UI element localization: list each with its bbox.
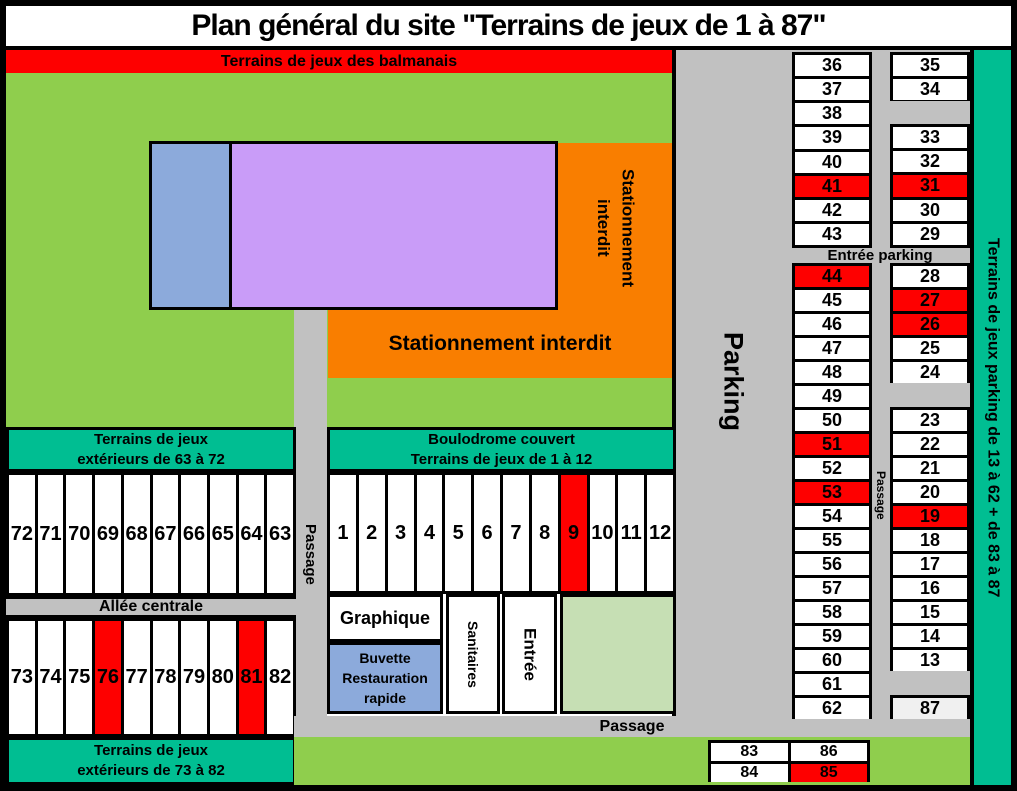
court-cell-39: 39	[795, 127, 869, 148]
court-cell-12: 12	[647, 475, 673, 591]
court-cell-5: 5	[445, 475, 471, 591]
parking-col-b-top-1: 3534	[890, 52, 970, 101]
parking-label-text: Parking	[718, 332, 749, 431]
entree-box: Entrée	[502, 594, 557, 714]
court-cell-29: 29	[893, 224, 967, 245]
court-cell-18: 18	[893, 530, 967, 551]
passage-band-bottom: Passage	[294, 716, 970, 737]
court-cell-62: 62	[795, 698, 869, 719]
court-cell-58: 58	[795, 602, 869, 623]
banner-balmanais: Terrains de jeux des balmanais	[6, 50, 672, 73]
site-map: Terrains de jeux des balmanais Parking S…	[6, 50, 1011, 785]
court-cell-87: 87	[893, 698, 967, 719]
parking-col-a-bottom: 44454647484950515253545556575859606162	[792, 263, 872, 719]
court-cell-67: 67	[153, 475, 179, 593]
banner-parking-13-62-83-87: Terrains de jeux parking de 13 à 62 + de…	[970, 50, 1011, 785]
court-cell-60: 60	[795, 650, 869, 671]
site-plan-page: Plan général du site "Terrains de jeux d…	[0, 0, 1017, 791]
banner-parking-right-text: Terrains de jeux parking de 13 à 62 + de…	[984, 238, 1002, 597]
court-cell-4: 4	[417, 475, 443, 591]
court-cell-47: 47	[795, 338, 869, 359]
court-cell-1: 1	[330, 475, 356, 591]
court-cell-16: 16	[893, 578, 967, 599]
pale-green-zone	[560, 594, 676, 714]
court-cell-84: 84	[711, 764, 788, 782]
court-cell-85: 85	[791, 764, 868, 782]
court-cell-86: 86	[791, 743, 868, 761]
court-cell-50: 50	[795, 410, 869, 431]
court-cell-57: 57	[795, 578, 869, 599]
court-cell-33: 33	[893, 127, 967, 148]
court-cell-7: 7	[503, 475, 529, 591]
court-cell-61: 61	[795, 674, 869, 695]
no-parking-zone-vertical: Stationnement interdit	[558, 143, 672, 313]
court-cell-72: 72	[9, 475, 35, 593]
court-cell-31: 31	[893, 175, 967, 196]
courts-row-63-72: 72717069686766656463	[6, 472, 296, 596]
court-cell-21: 21	[893, 458, 967, 479]
court-cell-63: 63	[267, 475, 293, 593]
graphique-box: Graphique	[327, 594, 443, 642]
parking-col-b-bottom-2: 2322212019181716151413	[890, 407, 970, 671]
court-cell-53: 53	[795, 482, 869, 503]
court-cell-23: 23	[893, 410, 967, 431]
court-cell-35: 35	[893, 55, 967, 76]
allee-centrale: Allée centrale	[6, 596, 296, 618]
court-cell-42: 42	[795, 200, 869, 221]
passage-strip-left: Passage	[294, 310, 327, 719]
court-cell-82: 82	[267, 621, 293, 734]
court-cell-77: 77	[124, 621, 150, 734]
court-cell-74: 74	[38, 621, 64, 734]
court-cell-26: 26	[893, 314, 967, 335]
banner-exterieurs-63-72: Terrains de jeux extérieurs de 63 à 72	[6, 427, 296, 472]
court-cell-75: 75	[66, 621, 92, 734]
court-cell-83: 83	[711, 743, 788, 761]
court-cell-19: 19	[893, 506, 967, 527]
court-cell-44: 44	[795, 266, 869, 287]
court-cell-73: 73	[9, 621, 35, 734]
court-cell-13: 13	[893, 650, 967, 671]
court-cell-41: 41	[795, 176, 869, 197]
court-cell-3: 3	[388, 475, 414, 591]
building-purple-section	[232, 144, 555, 307]
parking-cell-87: 87	[890, 695, 970, 719]
court-cell-38: 38	[795, 103, 869, 124]
court-cell-45: 45	[795, 290, 869, 311]
courts-83-86: 83868485	[708, 740, 870, 782]
court-cell-49: 49	[795, 386, 869, 407]
court-cell-28: 28	[893, 266, 967, 287]
court-cell-66: 66	[181, 475, 207, 593]
courts-row-1-12: 123456789101112	[327, 472, 676, 594]
court-cell-59: 59	[795, 626, 869, 647]
entree-parking-label: Entrée parking	[790, 247, 970, 263]
banner-boulodrome: Boulodrome couvert Terrains de jeux de 1…	[327, 427, 676, 472]
no-parking-zone-horizontal: Stationnement interdit	[328, 310, 672, 378]
court-cell-51: 51	[795, 434, 869, 455]
court-cell-40: 40	[795, 152, 869, 173]
court-cell-43: 43	[795, 224, 869, 245]
court-cell-2: 2	[359, 475, 385, 591]
parking-label: Parking	[676, 50, 790, 714]
court-cell-79: 79	[181, 621, 207, 734]
court-cell-55: 55	[795, 530, 869, 551]
passage-strip-right: Passage	[872, 450, 890, 540]
passage-left-label: Passage	[302, 524, 319, 585]
page-title: Plan général du site "Terrains de jeux d…	[6, 6, 1011, 46]
court-cell-48: 48	[795, 362, 869, 383]
court-cell-25: 25	[893, 338, 967, 359]
court-cell-20: 20	[893, 482, 967, 503]
court-cell-6: 6	[474, 475, 500, 591]
courts-row-73-82: 73747576777879808182	[6, 618, 296, 737]
court-cell-17: 17	[893, 554, 967, 575]
court-cell-15: 15	[893, 602, 967, 623]
court-cell-10: 10	[590, 475, 616, 591]
court-cell-11: 11	[618, 475, 644, 591]
court-cell-80: 80	[210, 621, 236, 734]
buvette-box: Buvette Restauration rapide	[327, 642, 443, 714]
court-cell-14: 14	[893, 626, 967, 647]
court-cell-30: 30	[893, 200, 967, 221]
parking-col-a-top: 3637383940414243	[792, 52, 872, 248]
court-cell-34: 34	[893, 79, 967, 100]
court-cell-37: 37	[795, 79, 869, 100]
court-cell-56: 56	[795, 554, 869, 575]
banner-exterieurs-73-82: Terrains de jeux extérieurs de 73 à 82	[6, 737, 296, 785]
court-cell-81: 81	[239, 621, 265, 734]
court-cell-36: 36	[795, 55, 869, 76]
no-parking-vertical-label: Stationnement interdit	[590, 169, 639, 287]
parking-col-b-top-2: 3332313029	[890, 124, 970, 248]
court-cell-70: 70	[66, 475, 92, 593]
sanitaires-box: Sanitaires	[446, 594, 500, 714]
court-cell-27: 27	[893, 290, 967, 311]
building-blue-section	[152, 144, 232, 307]
court-cell-22: 22	[893, 434, 967, 455]
court-cell-71: 71	[38, 475, 64, 593]
court-cell-69: 69	[95, 475, 121, 593]
court-cell-9: 9	[561, 475, 587, 591]
court-cell-54: 54	[795, 506, 869, 527]
parking-col-b-bottom-1: 2827262524	[890, 263, 970, 383]
court-cell-24: 24	[893, 362, 967, 383]
court-cell-68: 68	[124, 475, 150, 593]
court-cell-52: 52	[795, 458, 869, 479]
court-cell-64: 64	[239, 475, 265, 593]
building	[149, 141, 558, 310]
court-cell-32: 32	[893, 151, 967, 172]
entree-label: Entrée	[520, 628, 540, 681]
court-cell-8: 8	[532, 475, 558, 591]
court-cell-76: 76	[95, 621, 121, 734]
sanitaires-label: Sanitaires	[465, 621, 481, 688]
court-cell-65: 65	[210, 475, 236, 593]
court-cell-78: 78	[153, 621, 179, 734]
passage-right-label: Passage	[874, 471, 888, 520]
court-cell-46: 46	[795, 314, 869, 335]
